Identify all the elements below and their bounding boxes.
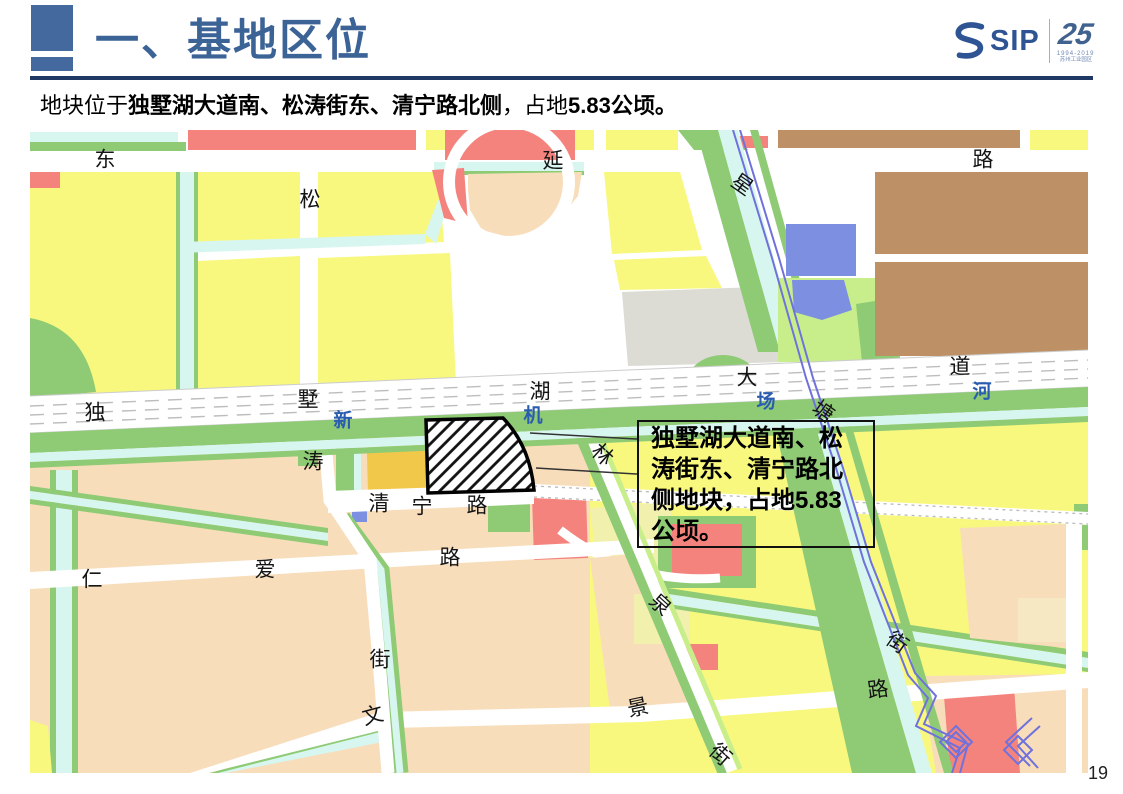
- map-road-label: 松: [300, 190, 321, 211]
- map-road-label: 路: [467, 496, 488, 517]
- sip-s-icon: [950, 21, 988, 61]
- subtitle-roads: 独墅湖大道南、松涛街东、清宁路北侧: [128, 93, 502, 118]
- page-number: 19: [1088, 763, 1108, 784]
- map-road-label: 墅: [298, 390, 319, 411]
- title-accent-square: [31, 5, 73, 51]
- map-road-label: 延: [543, 151, 564, 172]
- map-river-label: 新: [333, 412, 352, 431]
- map-road-label: 仁: [82, 570, 103, 591]
- sip-logo-text: SIP: [990, 25, 1040, 58]
- subtitle-middle: ，占地: [502, 93, 568, 118]
- map-road-label: 爱: [255, 560, 276, 581]
- sip-logo: SIP 25 1994-2019 苏州工业园区: [950, 12, 1110, 70]
- subtitle-area: 5.83公顷。: [568, 93, 677, 118]
- map-road-label: 街: [370, 650, 391, 671]
- anniversary-25: 25: [1056, 20, 1095, 50]
- landuse-map-graphic: [30, 130, 1088, 773]
- map-road-label: 宁: [412, 497, 433, 518]
- map-road-label: 湖: [530, 382, 551, 403]
- subtitle-prefix: 地块位于: [40, 93, 128, 118]
- map-road-label: 道: [950, 357, 971, 378]
- logo-divider: [1049, 19, 1050, 63]
- map-road-label: 东: [95, 150, 116, 171]
- map-road-label: 景: [626, 696, 651, 721]
- map-road-label: 清: [369, 494, 390, 515]
- anniversary-years: 1994-2019: [1057, 51, 1095, 57]
- anniversary-logo: 25 1994-2019 苏州工业园区: [1057, 20, 1095, 63]
- anniversary-org: 苏州工业园区: [1059, 57, 1091, 62]
- title-accent-bar: [31, 57, 73, 71]
- landuse-map: 东延路松星独墅湖大道新机场河涛塘林清宁路仁爱路泉街街文景路街 独墅湖大道南、松涛…: [30, 130, 1088, 773]
- map-road-label: 独: [85, 403, 106, 424]
- map-river-label: 场: [756, 393, 775, 412]
- map-road-label: 大: [737, 368, 758, 389]
- map-road-label: 涛: [303, 452, 324, 473]
- map-road-label: 路: [866, 678, 890, 702]
- map-road-label: 路: [973, 150, 994, 171]
- map-river-label: 机: [523, 407, 542, 426]
- header-divider-rule: [30, 76, 1093, 80]
- map-river-label: 河: [972, 383, 991, 402]
- site-callout-box: 独墅湖大道南、松涛街东、清宁路北侧地块，占地5.83公顷。: [637, 420, 875, 548]
- map-road-label: 路: [440, 548, 461, 569]
- location-subtitle: 地块位于独墅湖大道南、松涛街东、清宁路北侧，占地5.83公顷。: [40, 88, 677, 120]
- page-title: 一、基地区位: [95, 4, 371, 68]
